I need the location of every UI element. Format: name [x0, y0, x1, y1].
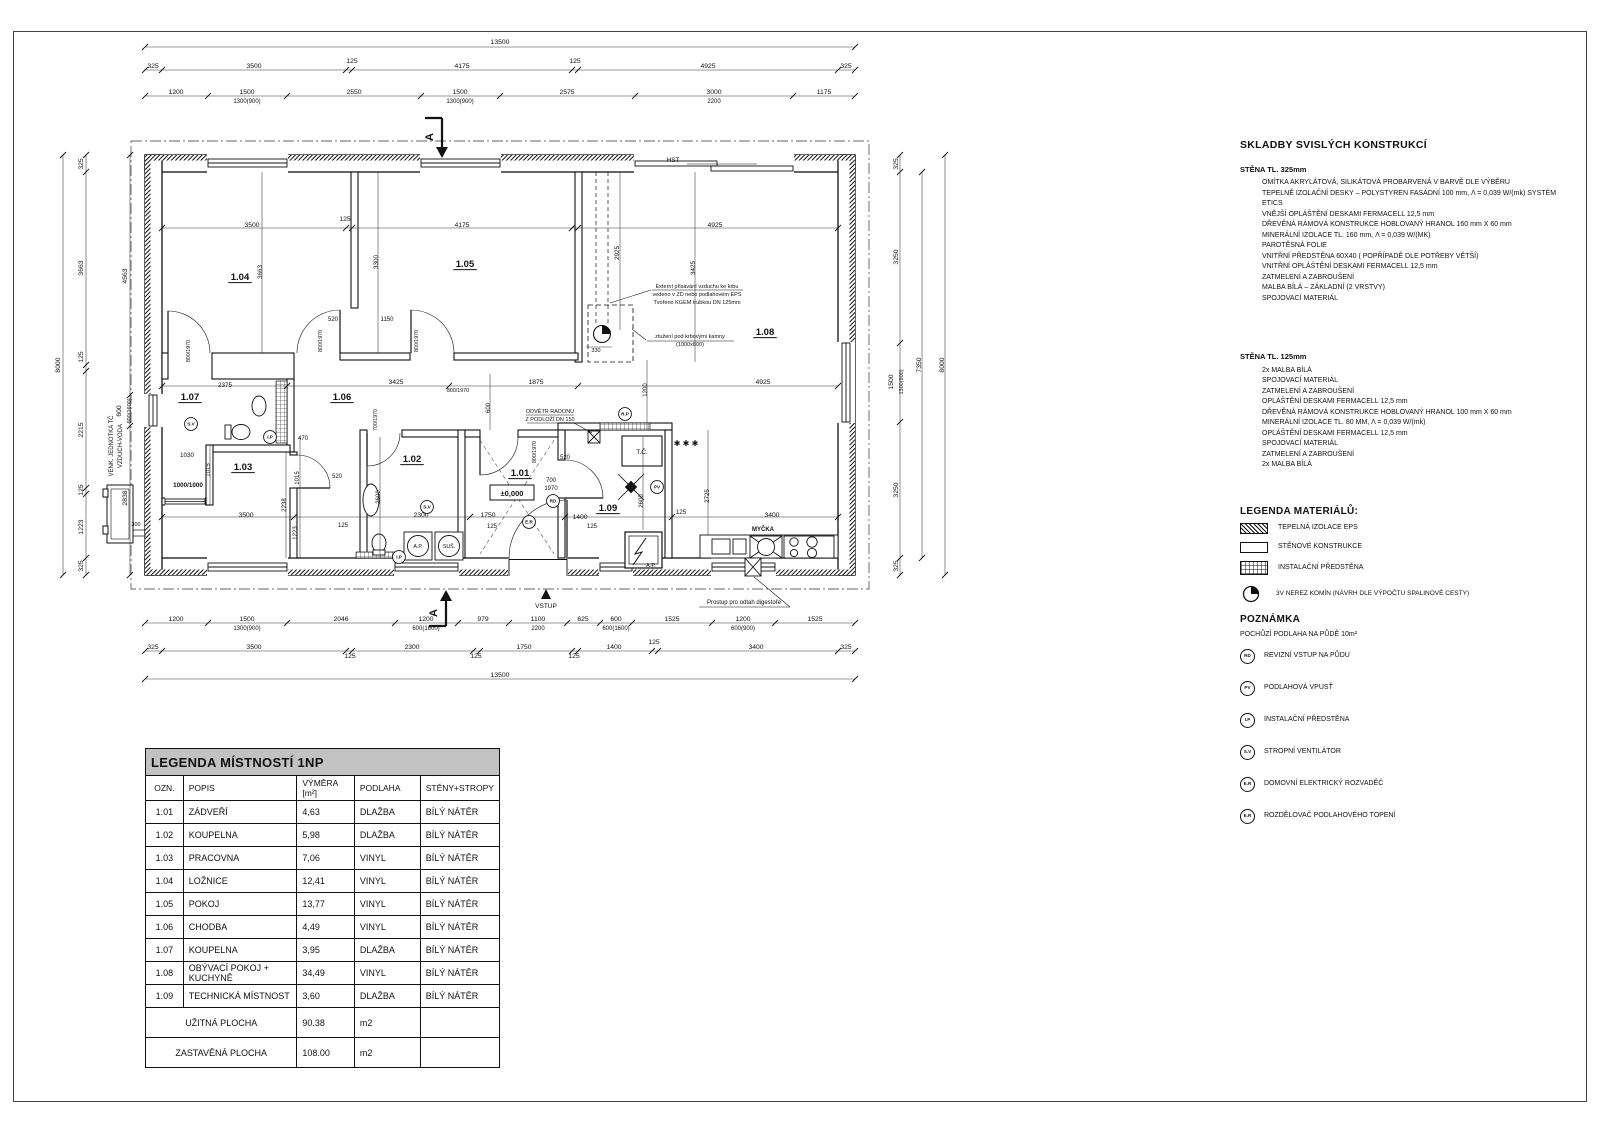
dim-label: 4175: [454, 222, 469, 229]
table-cell: ZÁDVEŘÍ: [183, 801, 297, 824]
dim-label: 13500: [491, 39, 510, 46]
dim-label: 3500: [244, 222, 259, 229]
dim-label: ODVĚTR RADONU: [526, 407, 574, 415]
note-line: POCHŮZÍ PODLAHA NA PŮDĚ 10m²: [1240, 630, 1570, 641]
table-cell: BÍLÝ NÁTĚR: [420, 893, 499, 916]
dim-label: 979: [477, 616, 489, 623]
table-cell: 1.07: [146, 939, 184, 962]
table-cell: VINYL: [354, 962, 420, 985]
table-cell: 13,77: [297, 893, 354, 916]
dim-label: 1.02: [403, 454, 422, 465]
wall1-layer-line: VNITŘNÍ PŘEDSTĚNA 60X40 ( POPŘÍPADĚ DLE …: [1262, 252, 1570, 263]
symbol-label: R.P: [621, 412, 629, 417]
wall1-layer-line: MALBA BÍLÁ – ZÁKLADNÍ (2 VRSTVY): [1262, 283, 1570, 294]
dim-label: 4925: [707, 222, 722, 229]
table-cell: VINYL: [354, 893, 420, 916]
table-cell: ZASTAVĚNÁ PLOCHA: [146, 1038, 297, 1068]
dim-label: 1875: [528, 379, 543, 386]
table-row: 1.08OBÝVACÍ POKOJ + KUCHYNĚ34,49VINYLBÍL…: [146, 962, 500, 985]
note-title: POZNÁMKA: [1240, 615, 1570, 626]
table-cell: POPIS: [183, 776, 297, 801]
dim-label: 125: [648, 639, 660, 646]
symbol-code: E.R: [1240, 809, 1255, 824]
dim-label: 125: [470, 653, 482, 660]
dim-label: 600(1600): [602, 626, 629, 632]
dim-label: 1525: [664, 616, 679, 623]
dim-label: 1500: [239, 616, 254, 623]
room-legend-table: LEGENDA MÍSTNOSTÍ 1NPOZN.POPISVÝMĚRA [m²…: [145, 748, 500, 1068]
wall2-layer-line: ZATMELENÍ A ZABROUŠENÍ: [1262, 387, 1570, 398]
wall2-layer-line: SPOJOVACÍ MATERIÁL: [1262, 439, 1570, 450]
table-cell: 1.02: [146, 824, 184, 847]
dim-label: 2200: [531, 626, 545, 632]
dim-label: 2046: [333, 616, 348, 623]
dim-label: 125: [78, 351, 85, 363]
table-cell: BÍLÝ NÁTĚR: [420, 962, 499, 985]
dim-label: 800/1970: [447, 388, 469, 394]
dim-label: 1.08: [756, 327, 775, 338]
dim-label: 1.04: [231, 272, 250, 283]
dim-label: 3500: [246, 63, 261, 70]
symbol-description: ROZDĚLOVAČ PODLAHOVÉHO TOPENÍ: [1264, 811, 1395, 822]
table-title-row: LEGENDA MÍSTNOSTÍ 1NP: [146, 749, 500, 776]
table-cell: 1.03: [146, 847, 184, 870]
niche-window: [165, 497, 205, 506]
dim-label: 1200: [643, 383, 649, 397]
dim-label: vedeno v ZD nebo podlahovém EPS: [653, 292, 742, 298]
dim-label: 1030: [180, 452, 195, 459]
dim-label: 700/1970: [373, 409, 379, 431]
dim-label: 7350: [916, 357, 923, 372]
dim-label: 700: [546, 478, 557, 484]
symbol-description: STROPNÍ VENTILÁTOR: [1264, 747, 1341, 758]
table-cell: BÍLÝ NÁTĚR: [420, 916, 499, 939]
table-cell: BÍLÝ NÁTĚR: [420, 985, 499, 1008]
wall2-layer-line: ZATMELENÍ A ZABROUŠENÍ: [1262, 450, 1570, 461]
dim-label: 1015: [295, 471, 301, 485]
dim-label: 3000: [706, 89, 721, 96]
dim-label: 1500: [452, 89, 467, 96]
dim-label: 600: [610, 616, 622, 623]
dim-label: 2925: [614, 246, 621, 261]
table-cell: BÍLÝ NÁTĚR: [420, 824, 499, 847]
table-cell: 1.04: [146, 870, 184, 893]
dim-label: 3425: [690, 261, 697, 276]
dim-label: 125: [569, 58, 581, 65]
wall1-layer-line: PAROTĚSNÁ FOLIE: [1262, 241, 1570, 252]
table-cell: OZN.: [146, 776, 184, 801]
table-cell: 108.00: [297, 1038, 354, 1068]
table-row: 1.07KOUPELNA3,95DLAŽBABÍLÝ NÁTĚR: [146, 939, 500, 962]
dim-label: 1.03: [234, 462, 253, 473]
legend-item: INSTALAČNÍ PŘEDSTĚNA: [1278, 563, 1363, 574]
dim-label: MYČKA: [752, 526, 775, 533]
dim-label: 3663: [78, 260, 85, 275]
dim-label: 1.01: [511, 468, 530, 479]
table-cell: [420, 1038, 499, 1068]
table-row: 1.01ZÁDVEŘÍ4,63DLAŽBABÍLÝ NÁTĚR: [146, 801, 500, 824]
dim-label: 2215: [78, 422, 85, 437]
symbol-code: PV: [1240, 681, 1255, 696]
wall1-lines: OMÍTKA AKRYLÁTOVÁ, SILIKÁTOVÁ PROBARVENÁ…: [1262, 178, 1570, 304]
symbol-description: INSTALAČNÍ PŘEDSTĚNA: [1264, 715, 1349, 726]
dim-label: 1525: [807, 616, 822, 623]
wall2-layer-line: OPLÁŠTĚNÍ DESKAMI FERMACELL 12,5 mm: [1262, 397, 1570, 408]
dim-label: 3250: [893, 482, 900, 497]
symbol-code: S.V: [1240, 745, 1255, 760]
table-cell: 12,41: [297, 870, 354, 893]
dim-label: 4925: [755, 379, 770, 386]
table-cell: LEGENDA MÍSTNOSTÍ 1NP: [146, 749, 500, 776]
wall1-layer-line: TEPELNĚ IZOLAČNÍ DESKY – POLYSTYREN FASÁ…: [1262, 189, 1570, 210]
dim-label: 3500: [246, 644, 261, 651]
table-footer-row: UŽITNÁ PLOCHA90.38m2: [146, 1008, 500, 1038]
table-cell: 4,49: [297, 916, 354, 939]
wall1-layer-line: VNITŘNÍ OPLÁŠTĚNÍ DESKAMI FERMACELL 12,5…: [1262, 262, 1570, 273]
wall2-layer-line: MINERÁLNÍ IZOLACE TL. 80 MM, Λ = 0,039 W…: [1262, 418, 1570, 429]
table-cell: KOUPELNA: [183, 939, 297, 962]
table-cell: BÍLÝ NÁTĚR: [420, 939, 499, 962]
dim-label: A.P.: [646, 563, 656, 569]
dim-label: 125: [338, 523, 349, 529]
table-cell: CHODBA: [183, 916, 297, 939]
table-row: 1.04LOŽNICE12,41VINYLBÍLÝ NÁTĚR: [146, 870, 500, 893]
dim-label: 2600: [376, 490, 382, 504]
dim-label: Prostup pro odtah digestoře: [707, 600, 782, 606]
dim-label: 625: [577, 616, 589, 623]
dim-label: 325: [840, 63, 852, 70]
dim-label: 470: [298, 436, 309, 442]
dim-label: 1150: [381, 317, 395, 323]
table-cell: m2: [354, 1008, 420, 1038]
table-row: 1.03PRACOVNA7,06VINYLBÍLÝ NÁTĚR: [146, 847, 500, 870]
dim-label: 1970: [544, 486, 558, 492]
dim-label: 1175: [817, 89, 832, 96]
symbol-legend-row: I.PINSTALAČNÍ PŘEDSTĚNA: [1240, 713, 1570, 728]
architectural-drawing-sheet: { "panel": { "skladby_title": "SKLADBY S…: [0, 0, 1600, 1132]
table-cell: DLAŽBA: [354, 939, 420, 962]
dim-label: 1223: [293, 526, 299, 540]
symbol-code: E.R: [1240, 777, 1255, 792]
symbol-label: S.V: [187, 422, 195, 427]
legend-item: STĚNOVÉ KONSTRUKCE: [1278, 542, 1362, 553]
symbol-label: E.R: [525, 520, 533, 525]
table-cell: TECHNICKÁ MÍSTNOST: [183, 985, 297, 1008]
predstena-107: [276, 381, 287, 443]
legend-item: TEPELNÁ IZOLACE EPS: [1278, 523, 1358, 534]
bathroom-107-fixtures: [225, 396, 266, 440]
dim-label: 600: [486, 402, 492, 413]
dim-label: 520: [332, 474, 343, 480]
table-cell: PODLAHA: [354, 776, 420, 801]
symbol-description: REVIZNÍ VSTUP NA PŮDU: [1264, 651, 1350, 662]
table-cell: POKOJ: [183, 893, 297, 916]
table-cell: 3,95: [297, 939, 354, 962]
construction-notes-panel: SKLADBY SVISLÝCH KONSTRUKCÍ STĚNA TL. 32…: [1240, 140, 1570, 841]
dim-label: 2550: [346, 89, 361, 96]
dim-label: A: [428, 609, 440, 617]
table-cell: 3,60: [297, 985, 354, 1008]
table-cell: 1.05: [146, 893, 184, 916]
dim-label: 125: [568, 653, 580, 660]
dim-label: 125: [78, 484, 85, 496]
wall1-layer-line: SPOJOVACÍ MATERIÁL: [1262, 294, 1570, 305]
wall2-lines: 2x MALBA BÍLÁSPOJOVACÍ MATERIÁLZATMELENÍ…: [1262, 366, 1570, 471]
dim-label: 1.05: [456, 259, 475, 270]
dim-label: HST: [667, 157, 680, 164]
dim-label: 2600: [639, 494, 645, 508]
table-cell: PRACOVNA: [183, 847, 297, 870]
dim-label: 2300: [404, 644, 419, 651]
symbol-code: RD: [1240, 649, 1255, 664]
table-cell: 1.09: [146, 985, 184, 1008]
dim-label: 2838: [122, 490, 129, 505]
dim-label: VENK. JEDNOTKA TČ: [108, 415, 115, 477]
symbol-label: I.P: [267, 435, 273, 440]
dim-label: 3500: [238, 512, 253, 519]
digestor-opening: [745, 558, 761, 576]
chimney-swatch: [1240, 585, 1266, 603]
symbol-legend-row: RDREVIZNÍ VSTUP NA PŮDU: [1240, 649, 1570, 664]
dim-label: 4925: [700, 63, 715, 70]
symbol-label: PV: [654, 485, 661, 490]
skladby-title: SKLADBY SVISLÝCH KONSTRUKCÍ: [1240, 140, 1570, 151]
symbol-label: S.V: [423, 505, 431, 510]
chimney: [586, 172, 633, 362]
dim-label: 3663: [257, 265, 264, 280]
table-row: 1.05POKOJ13,77VINYLBÍLÝ NÁTĚR: [146, 893, 500, 916]
table-cell: VINYL: [354, 870, 420, 893]
dim-label: 1300(900): [446, 99, 473, 105]
dim-label: 325: [893, 158, 900, 170]
table-cell: 7,06: [297, 847, 354, 870]
table-cell: STĚNY+STROPY: [420, 776, 499, 801]
symbol-code: I.P: [1240, 713, 1255, 728]
dim-label: 1100: [531, 616, 546, 623]
table-cell: VINYL: [354, 916, 420, 939]
dim-label: 1400: [572, 514, 587, 521]
dim-label: 4563: [122, 268, 129, 283]
table-row: 1.06CHODBA4,49VINYLBÍLÝ NÁTĚR: [146, 916, 500, 939]
table-header-row: OZN.POPISVÝMĚRA [m²]PODLAHASTĚNY+STROPY: [146, 776, 500, 801]
dim-label: 2238: [282, 498, 288, 512]
legend-title: LEGENDA MATERIÁLŮ:: [1240, 507, 1570, 518]
dim-label: 125: [339, 216, 351, 223]
dim-label: 3400: [748, 644, 763, 651]
dim-label: SUŠ.: [443, 543, 455, 550]
predstena-swatch: [1240, 561, 1268, 575]
dim-label: 1000/1000: [173, 482, 203, 489]
dim-label: 2575: [559, 89, 574, 96]
dim-label: 1750: [480, 512, 495, 519]
dim-label: 1200: [168, 616, 183, 623]
dim-label: 1300(900): [233, 626, 260, 632]
dim-label: ±0,000: [501, 489, 524, 498]
dim-label: 1200: [168, 89, 183, 96]
table-cell: VÝMĚRA [m²]: [297, 776, 354, 801]
dim-label: 1015: [206, 463, 212, 477]
dim-label: 8000: [55, 357, 62, 372]
dim-label: 300: [131, 522, 140, 528]
dim-label: 2200: [707, 99, 721, 105]
wall2-layer-line: DŘEVĚNÁ RÁMOVÁ KONSTRUKCE HOBLOVANÝ HRAN…: [1262, 408, 1570, 419]
table-cell: BÍLÝ NÁTĚR: [420, 847, 499, 870]
dim-label: 800/1970: [186, 340, 192, 362]
dim-label: 125: [346, 58, 358, 65]
symbol-legend: RDREVIZNÍ VSTUP NA PŮDUPVPODLAHOVÁ VPUSŤ…: [1240, 649, 1570, 824]
table-cell: DLAŽBA: [354, 824, 420, 847]
table-cell: 4,63: [297, 801, 354, 824]
wall1-layer-line: DŘEVĚNÁ RÁMOVÁ KONSTRUKCE HOBLOVANÝ HRAN…: [1262, 220, 1570, 231]
dim-label: 1.07: [181, 392, 200, 403]
table-cell: 1.01: [146, 801, 184, 824]
dim-label: 520: [328, 317, 339, 323]
dim-label: 1500: [888, 374, 895, 389]
dim-label: Z PODLOŽÍ DN 150: [525, 415, 574, 423]
table-cell: VINYL: [354, 847, 420, 870]
table-row: 1.09TECHNICKÁ MÍSTNOST3,60DLAŽBABÍLÝ NÁT…: [146, 985, 500, 1008]
dim-label: 8000: [939, 357, 946, 372]
dim-label: 325: [840, 644, 852, 651]
dim-label: 325: [147, 644, 159, 651]
dim-label: 600(900): [731, 626, 755, 632]
dim-label: 800/1970: [318, 330, 324, 352]
dim-label: 1500: [239, 89, 254, 96]
legend-item: 3V NEREZ KOMÍN (NÁVRH DLE VÝPOČTU SPALIN…: [1276, 589, 1469, 600]
table-cell: 34,49: [297, 962, 354, 985]
entry-arrow: [541, 589, 551, 599]
predstena-109: [600, 423, 650, 430]
dim-label: 4175: [454, 63, 469, 70]
dim-label: 600(1600): [412, 626, 439, 632]
dim-label: 3250: [893, 249, 900, 264]
dim-label: 1223: [78, 519, 85, 534]
table-footer-row: ZASTAVĚNÁ PLOCHA108.00m2: [146, 1038, 500, 1068]
table-cell: m2: [354, 1038, 420, 1068]
dim-label: 800/1970: [532, 441, 538, 463]
dim-label: 600(1600): [127, 398, 133, 423]
dim-label: 1200: [735, 616, 750, 623]
wall2-title: STĚNA TL. 125mm: [1240, 352, 1570, 363]
table-cell: DLAŽBA: [354, 985, 420, 1008]
wall2-layer-line: OPLÁŠTĚNÍ DESKAMI FERMACELL 12,5 mm: [1262, 429, 1570, 440]
dim-label: VSTUP: [535, 603, 557, 610]
symbol-label: I.P: [396, 555, 402, 560]
dim-label: 1750: [516, 644, 531, 651]
wall1-layer-line: MINERÁLNÍ IZOLACE TL. 160 mm, Λ = 0,039 …: [1262, 231, 1570, 242]
dim-label: ztužení pod krbovými kamny: [655, 334, 725, 340]
dim-label: VZDUCH-VODA: [118, 424, 124, 468]
table-cell: OBÝVACÍ POKOJ + KUCHYNĚ: [183, 962, 297, 985]
dim-label: 125: [344, 653, 356, 660]
wall-swatch: [1240, 542, 1268, 553]
symbol-label: RD: [550, 499, 557, 504]
symbol-description: PODLAHOVÁ VPUSŤ: [1264, 683, 1333, 694]
dim-label: (1000x800): [676, 342, 704, 348]
symbol-legend-row: PVPODLAHOVÁ VPUSŤ: [1240, 681, 1570, 696]
dim-label: 3425: [388, 379, 403, 386]
table-cell: 5,98: [297, 824, 354, 847]
dim-label: 1.09: [599, 503, 618, 514]
table-cell: 1.06: [146, 916, 184, 939]
table-cell: LOŽNICE: [183, 870, 297, 893]
interior-walls: [162, 172, 672, 558]
dim-label: 325: [78, 560, 85, 572]
dim-label: Tvořeno KGEM trubkou DN 125mm: [653, 300, 741, 306]
wall2-layer-line: 2x MALBA BÍLÁ: [1262, 460, 1570, 471]
table-cell: BÍLÝ NÁTĚR: [420, 870, 499, 893]
wall2-layer-line: 2x MALBA BÍLÁ: [1262, 366, 1570, 377]
symbol-legend-row: S.VSTROPNÍ VENTILÁTOR: [1240, 745, 1570, 760]
table-cell: [420, 1008, 499, 1038]
dim-label: 325: [147, 63, 159, 70]
dim-label: 3400: [764, 512, 779, 519]
dim-label: 520: [560, 455, 571, 461]
symbol-description: DOMOVNÍ ELEKTRICKÝ ROZVADĚČ: [1264, 779, 1383, 790]
dim-label: 800/1970: [414, 330, 420, 352]
table-cell: 1.08: [146, 962, 184, 985]
dim-label: 2375: [218, 382, 233, 389]
table-cell: KOUPELNA: [183, 824, 297, 847]
table-cell: BÍLÝ NÁTĚR: [420, 801, 499, 824]
dim-label: 125: [487, 524, 498, 530]
radon-vent: [588, 431, 600, 443]
dim-label: A: [424, 133, 436, 141]
table-cell: UŽITNÁ PLOCHA: [146, 1008, 297, 1038]
dim-label: 1.06: [333, 392, 352, 403]
dim-label: 1400: [606, 644, 621, 651]
wall1-title: STĚNA TL. 325mm: [1240, 165, 1570, 176]
dim-label: 1300(900): [233, 99, 260, 105]
symbol-legend-row: E.RROZDĚLOVAČ PODLAHOVÉHO TOPENÍ: [1240, 809, 1570, 824]
dim-label: 325: [78, 158, 85, 170]
table-cell: DLAŽBA: [354, 801, 420, 824]
dim-label: 2725: [705, 489, 711, 503]
table-cell: 90.38: [297, 1008, 354, 1038]
dim-label: 1300(900): [899, 369, 905, 394]
wall1-layer-line: ZATMELENÍ A ZABROUŠENÍ: [1262, 273, 1570, 284]
wall1-layer-line: VNĚJŠÍ OPLÁŠTĚNÍ DESKAMI FERMACELL 12,5 …: [1262, 210, 1570, 221]
dim-label: 125: [676, 509, 687, 516]
dim-label: 3300: [373, 255, 380, 270]
dim-label: T.Č.: [636, 447, 648, 456]
dim-label: A.P.: [413, 544, 422, 550]
dim-label: 125: [587, 524, 598, 530]
dim-label: 13500: [491, 672, 510, 679]
insulation-swatch: [1240, 523, 1268, 534]
dim-label: ✱ ✱ ✱: [674, 439, 699, 448]
wall2-layer-line: SPOJOVACÍ MATERIÁL: [1262, 376, 1570, 387]
dimension-lines: [60, 44, 948, 682]
dim-label: 325: [893, 560, 900, 572]
dim-label: 600: [116, 405, 123, 417]
table-row: 1.02KOUPELNA5,98DLAŽBABÍLÝ NÁTĚR: [146, 824, 500, 847]
wall1-layer-line: OMÍTKA AKRYLÁTOVÁ, SILIKÁTOVÁ PROBARVENÁ…: [1262, 178, 1570, 189]
symbol-legend-row: E.RDOMOVNÍ ELEKTRICKÝ ROZVADĚČ: [1240, 777, 1570, 792]
dim-label: Externí přisávání vzduchu ke krbu: [656, 284, 739, 290]
dim-label: 330: [591, 348, 600, 354]
